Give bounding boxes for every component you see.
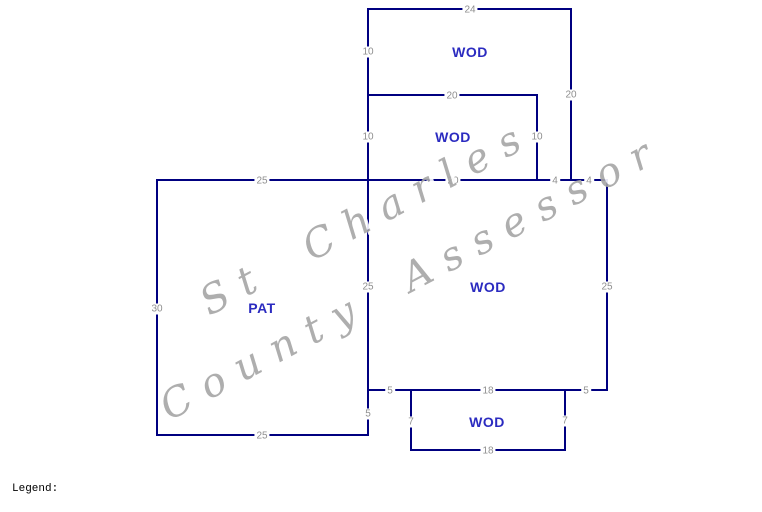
dimension-label: 25 [254, 431, 269, 442]
sketch-layer: 24102020101025204430252551855257718WODWO… [0, 0, 762, 512]
dimension-label: 10 [360, 132, 375, 143]
area-label: WOD [452, 44, 488, 60]
dimension-label: 25 [360, 282, 375, 293]
dimension-label: 24 [462, 5, 477, 16]
dimension-label: 7 [406, 417, 416, 428]
dimension-label: 20 [444, 91, 459, 102]
legend: Legend: PAT:PATIO WOD:WOOD DECK [12, 459, 149, 512]
sketch-line [367, 8, 369, 436]
legend-title: Legend: [12, 483, 149, 495]
area-label: WOD [469, 414, 505, 430]
dimension-label: 5 [581, 386, 591, 397]
dimension-label: 10 [360, 47, 375, 58]
dimension-label: 7 [560, 416, 570, 427]
sketch-line [156, 179, 608, 181]
dimension-label: 20 [563, 90, 578, 101]
dimension-label: 25 [254, 176, 269, 187]
dimension-label: 20 [445, 176, 460, 187]
dimension-label: 25 [599, 282, 614, 293]
dimension-label: 30 [149, 304, 164, 315]
assessor-sketch-canvas: St Charles County Assessor 2410202010102… [0, 0, 762, 512]
area-label: WOD [435, 129, 471, 145]
dimension-label: 5 [385, 386, 395, 397]
dimension-label: 18 [480, 386, 495, 397]
dimension-label: 4 [550, 176, 560, 187]
dimension-label: 10 [529, 132, 544, 143]
area-label: PAT [248, 300, 275, 316]
dimension-label: 4 [584, 176, 594, 187]
dimension-label: 18 [480, 446, 495, 457]
dimension-label: 5 [363, 409, 373, 420]
area-label: WOD [470, 279, 506, 295]
